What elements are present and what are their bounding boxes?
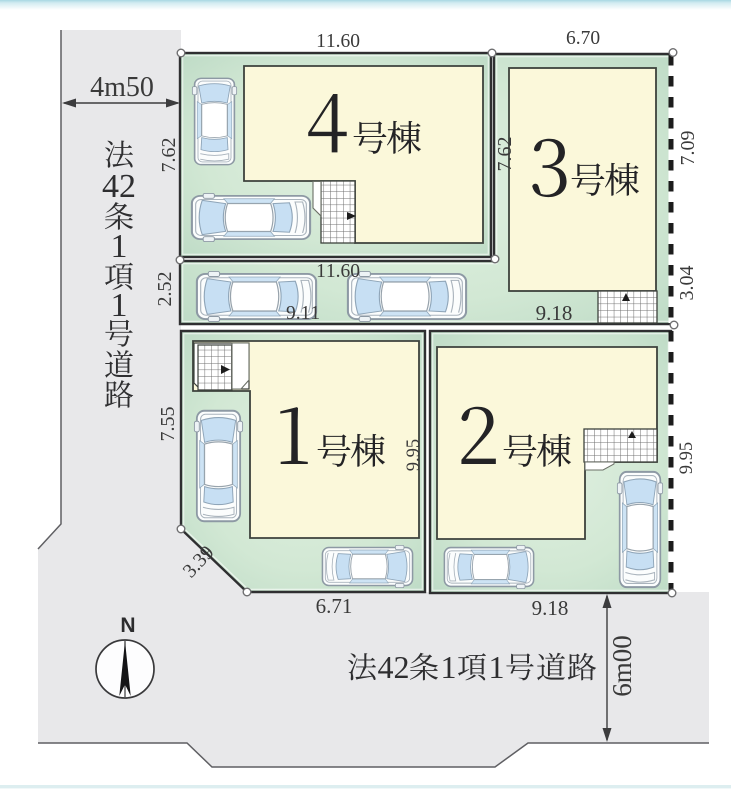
svg-text:6.70: 6.70 <box>566 28 600 49</box>
svg-text:6.71: 6.71 <box>316 594 353 618</box>
svg-text:11.60: 11.60 <box>316 261 360 282</box>
svg-text:2.52: 2.52 <box>154 272 176 307</box>
svg-text:1: 1 <box>441 649 457 685</box>
svg-text:N: N <box>120 614 135 637</box>
svg-text:9.18: 9.18 <box>532 596 569 620</box>
svg-text:7.62: 7.62 <box>158 138 180 173</box>
svg-text:9.11: 9.11 <box>286 303 320 324</box>
svg-text:9.95: 9.95 <box>404 439 424 471</box>
svg-text:9.95: 9.95 <box>677 442 697 474</box>
svg-text:42: 42 <box>378 649 410 685</box>
svg-text:7.62: 7.62 <box>494 137 516 172</box>
svg-text:42: 42 <box>102 168 136 205</box>
svg-text:7.09: 7.09 <box>677 131 699 166</box>
svg-text:1: 1 <box>489 649 505 685</box>
svg-text:7.55: 7.55 <box>157 407 179 442</box>
svg-text:4m50: 4m50 <box>90 72 154 103</box>
svg-text:9.18: 9.18 <box>536 301 573 325</box>
svg-text:1: 1 <box>111 287 128 324</box>
svg-text:3.04: 3.04 <box>676 266 698 301</box>
svg-text:11.60: 11.60 <box>316 31 360 52</box>
svg-text:1: 1 <box>111 228 128 265</box>
svg-text:6m00: 6m00 <box>607 635 637 697</box>
